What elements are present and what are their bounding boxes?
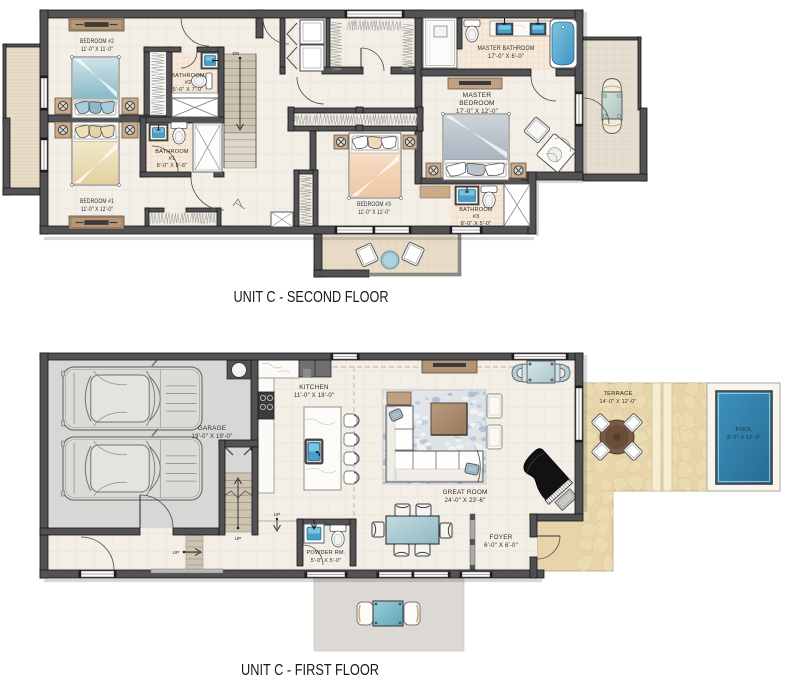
svg-text:UNIT C - FIRST FLOOR: UNIT C - FIRST FLOOR xyxy=(241,662,379,679)
svg-text:BEDROOM: BEDROOM xyxy=(459,100,494,107)
svg-text:24′-0″ X 23′-6″: 24′-0″ X 23′-6″ xyxy=(445,498,487,504)
svg-text:5′-6″ X 7′-0″: 5′-6″ X 7′-0″ xyxy=(173,87,204,93)
svg-text:UP: UP xyxy=(235,536,242,541)
svg-text:BEDROOM #3: BEDROOM #3 xyxy=(357,201,391,208)
svg-text:14′-0″ X 12′-0″: 14′-0″ X 12′-0″ xyxy=(599,399,636,405)
svg-text:GARAGE: GARAGE xyxy=(198,425,227,432)
svg-text:#2: #2 xyxy=(185,80,192,86)
svg-text:MASTER BATHROOM: MASTER BATHROOM xyxy=(478,45,535,52)
svg-text:17′-0″ X 6′-0″: 17′-0″ X 6′-0″ xyxy=(488,54,525,60)
svg-text:BATHROOM: BATHROOM xyxy=(459,207,493,213)
svg-text:BEDROOM #1: BEDROOM #1 xyxy=(80,198,114,205)
svg-text:BATHROOM: BATHROOM xyxy=(155,149,189,155)
svg-text:UP: UP xyxy=(173,550,180,555)
svg-text:POOL: POOL xyxy=(736,427,753,433)
svg-text:POWDER RM.: POWDER RM. xyxy=(307,550,346,556)
svg-text:8′-0″ X 8′-6″: 8′-0″ X 8′-6″ xyxy=(157,163,188,169)
svg-text:11′-0″ X 18′-0″: 11′-0″ X 18′-0″ xyxy=(294,393,335,399)
svg-text:UNIT C - SECOND FLOOR: UNIT C - SECOND FLOOR xyxy=(234,289,389,306)
svg-text:BEDROOM #2: BEDROOM #2 xyxy=(80,38,114,45)
svg-text:11′-0″ X 11′-0″: 11′-0″ X 11′-0″ xyxy=(81,46,113,53)
svg-text:GREAT ROOM: GREAT ROOM xyxy=(442,489,487,496)
svg-text:DN: DN xyxy=(232,51,239,56)
svg-text:17′-0″ X 12′-0″: 17′-0″ X 12′-0″ xyxy=(456,108,499,115)
svg-text:11′-0″ X 11′-0″: 11′-0″ X 11′-0″ xyxy=(358,209,390,216)
svg-text:#1: #1 xyxy=(169,156,176,162)
svg-text:TERRACE: TERRACE xyxy=(603,391,632,397)
svg-text:KITCHEN: KITCHEN xyxy=(299,384,329,391)
svg-text:11′-0″ X 12′-0″: 11′-0″ X 12′-0″ xyxy=(81,206,113,213)
svg-text:6′-0″ X 6′-0″: 6′-0″ X 6′-0″ xyxy=(484,543,518,549)
svg-text:19′-0″ X 19′-0″: 19′-0″ X 19′-0″ xyxy=(192,434,234,440)
svg-text:FOYER: FOYER xyxy=(489,534,512,541)
svg-text:8′-0″ X 12′-0″: 8′-0″ X 12′-0″ xyxy=(727,435,761,441)
svg-text:MASTER: MASTER xyxy=(463,92,492,99)
svg-text:5′-0″ X 5′-0″: 5′-0″ X 5′-0″ xyxy=(311,558,342,564)
svg-text:UP: UP xyxy=(274,512,281,517)
svg-text:8′-0″ X 5′-0″: 8′-0″ X 5′-0″ xyxy=(461,221,492,227)
svg-text:BATHROOM: BATHROOM xyxy=(171,73,205,79)
svg-text:#3: #3 xyxy=(473,214,480,220)
